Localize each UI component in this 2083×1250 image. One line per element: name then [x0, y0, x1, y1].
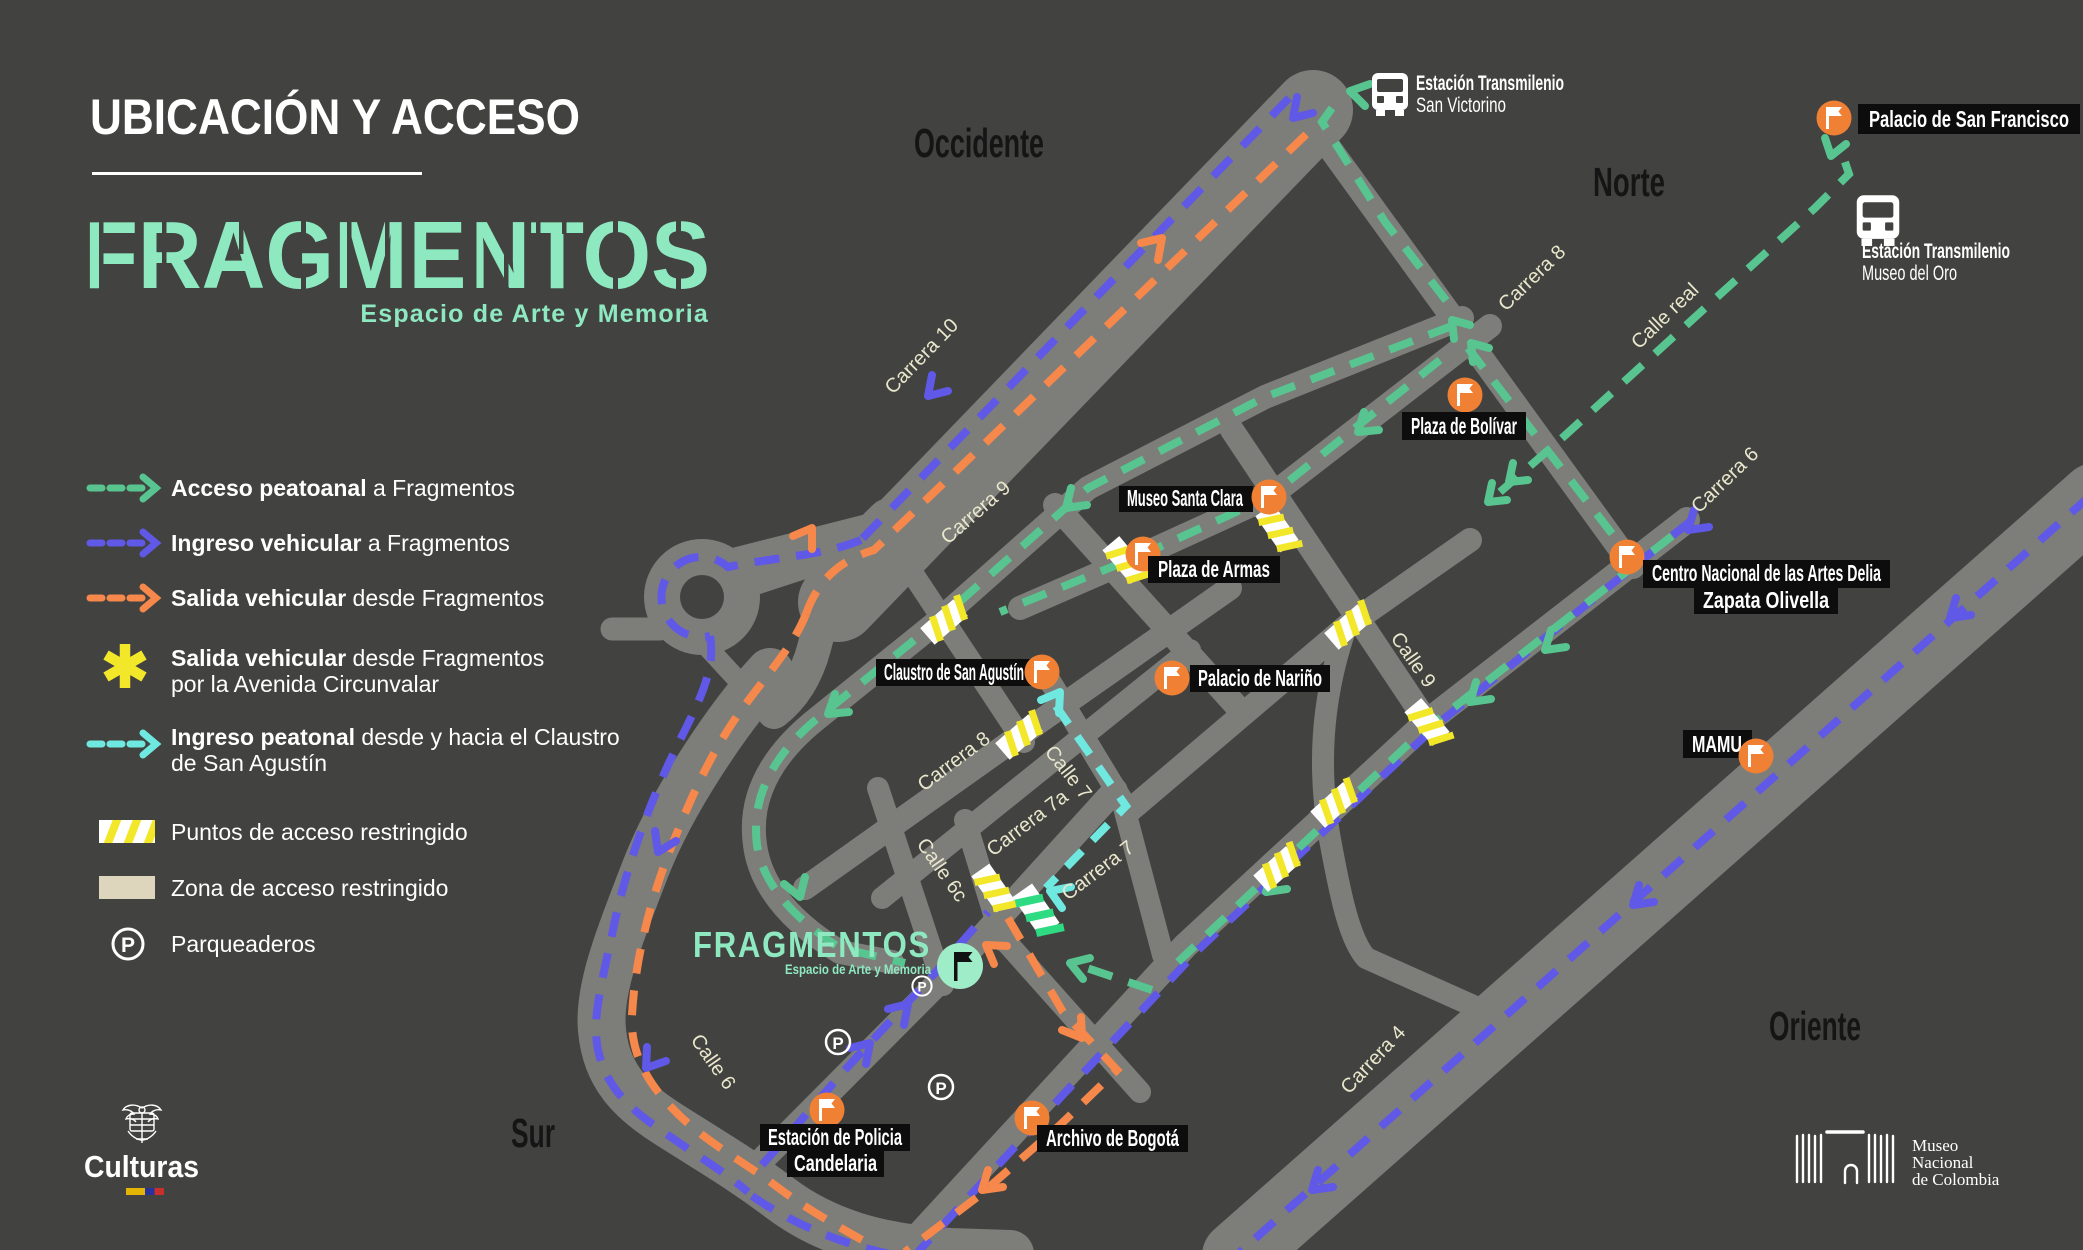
svg-text:Espacio de Arte y Memoria: Espacio de Arte y Memoria — [360, 300, 709, 328]
svg-text:Parqueaderos: Parqueaderos — [171, 931, 316, 957]
svg-text:Claustro de San Agustín: Claustro de San Agustín — [884, 659, 1024, 685]
svg-text:Acceso peatoanal a Fragmentos: Acceso peatoanal a Fragmentos — [171, 475, 515, 501]
svg-text:Oriente: Oriente — [1769, 1003, 1861, 1049]
svg-text:Culturas: Culturas — [84, 1149, 199, 1184]
svg-text:Museo Santa Clara: Museo Santa Clara — [1127, 485, 1243, 511]
svg-text:Espacio de Arte y Memoria: Espacio de Arte y Memoria — [785, 962, 931, 977]
svg-text:Palacio de San Francisco: Palacio de San Francisco — [1869, 106, 2069, 132]
svg-text:Plaza de Bolívar: Plaza de Bolívar — [1411, 413, 1517, 439]
svg-text:Norte: Norte — [1593, 159, 1665, 205]
svg-text:Palacio de Nariño: Palacio de Nariño — [1198, 665, 1322, 691]
svg-text:Ingreso peatonal desde y hacia: Ingreso peatonal desde y hacia el Claust… — [171, 724, 620, 750]
svg-text:Zapata Olivella: Zapata Olivella — [1703, 587, 1829, 613]
svg-text:por la Avenida Circunvalar: por la Avenida Circunvalar — [171, 671, 439, 697]
svg-text:Sur: Sur — [511, 1110, 555, 1156]
svg-text:de San Agustín: de San Agustín — [171, 750, 327, 776]
svg-text:Occidente: Occidente — [914, 120, 1044, 166]
svg-text:Candelaria: Candelaria — [794, 1150, 877, 1176]
svg-text:Estación de Policia: Estación de Policia — [768, 1124, 902, 1150]
svg-text:Plaza de Armas: Plaza de Armas — [1158, 556, 1270, 582]
svg-text:San Victorino: San Victorino — [1416, 94, 1506, 117]
svg-text:Archivo de Bogotá: Archivo de Bogotá — [1046, 1125, 1179, 1151]
svg-text:Museo del Oro: Museo del Oro — [1862, 262, 1957, 285]
svg-text:Salida vehicular desde Fragmen: Salida vehicular desde Fragmentos — [171, 645, 544, 671]
svg-text:Centro Nacional de las Artes D: Centro Nacional de las Artes Delia — [1652, 560, 1881, 586]
svg-text:Zona de acceso restringido: Zona de acceso restringido — [171, 875, 448, 901]
svg-text:UBICACIÓN Y ACCESO: UBICACIÓN Y ACCESO — [90, 89, 580, 145]
svg-text:MAMU: MAMU — [1692, 731, 1742, 757]
svg-text:Puntos de acceso restringido: Puntos de acceso restringido — [171, 819, 468, 845]
svg-text:P: P — [121, 934, 135, 957]
svg-text:Ingreso vehicular a Fragmentos: Ingreso vehicular a Fragmentos — [171, 530, 510, 556]
svg-text:FRAGMENTOS: FRAGMENTOS — [693, 924, 931, 965]
svg-text:Salida vehicular desde Fragmen: Salida vehicular desde Fragmentos — [171, 585, 544, 611]
svg-text:de Colombia: de Colombia — [1912, 1170, 2000, 1189]
svg-text:Estación Transmilenio: Estación Transmilenio — [1416, 72, 1564, 95]
svg-text:Estación Transmilenio: Estación Transmilenio — [1862, 240, 2010, 263]
